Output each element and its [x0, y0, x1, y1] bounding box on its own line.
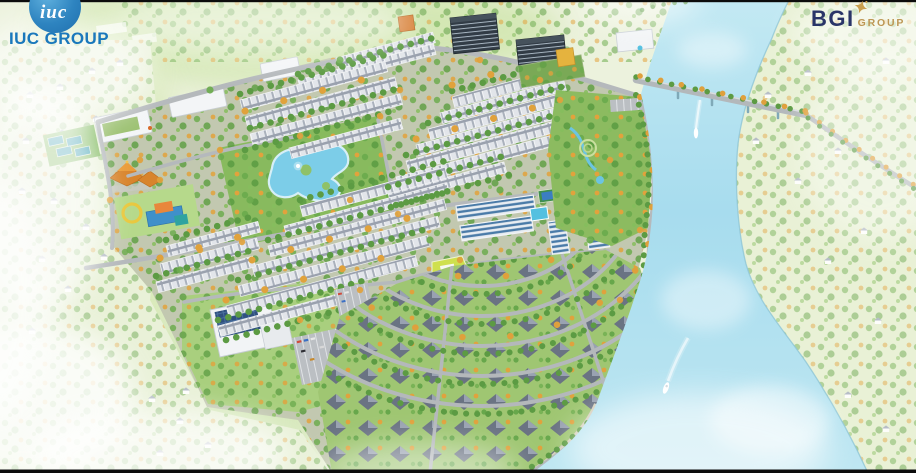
boat-icon — [694, 128, 698, 139]
iuc-monogram: iuc — [40, 2, 67, 24]
bgi-wordmark: BGI — [811, 6, 855, 32]
sparkle-star-icon — [853, 0, 869, 15]
riverside-hotel — [616, 29, 654, 52]
iuc-group-logo: iuc IUC GROUP — [4, 0, 134, 52]
yellow-building — [556, 48, 575, 67]
iuc-wordmark: IUC GROUP — [9, 29, 109, 49]
bgi-group-logo: BGI GROUP — [811, 6, 905, 32]
bgi-suffix: GROUP — [858, 17, 906, 29]
fountain — [294, 162, 303, 171]
masterplan-render — [0, 0, 916, 473]
letterbox-bottom — [0, 470, 916, 473]
letterbox-top — [0, 0, 916, 2]
riverside-park — [548, 90, 652, 246]
swimming-pool — [530, 207, 549, 221]
video-frame: iuc IUC GROUP BGI GROUP — [0, 0, 916, 473]
